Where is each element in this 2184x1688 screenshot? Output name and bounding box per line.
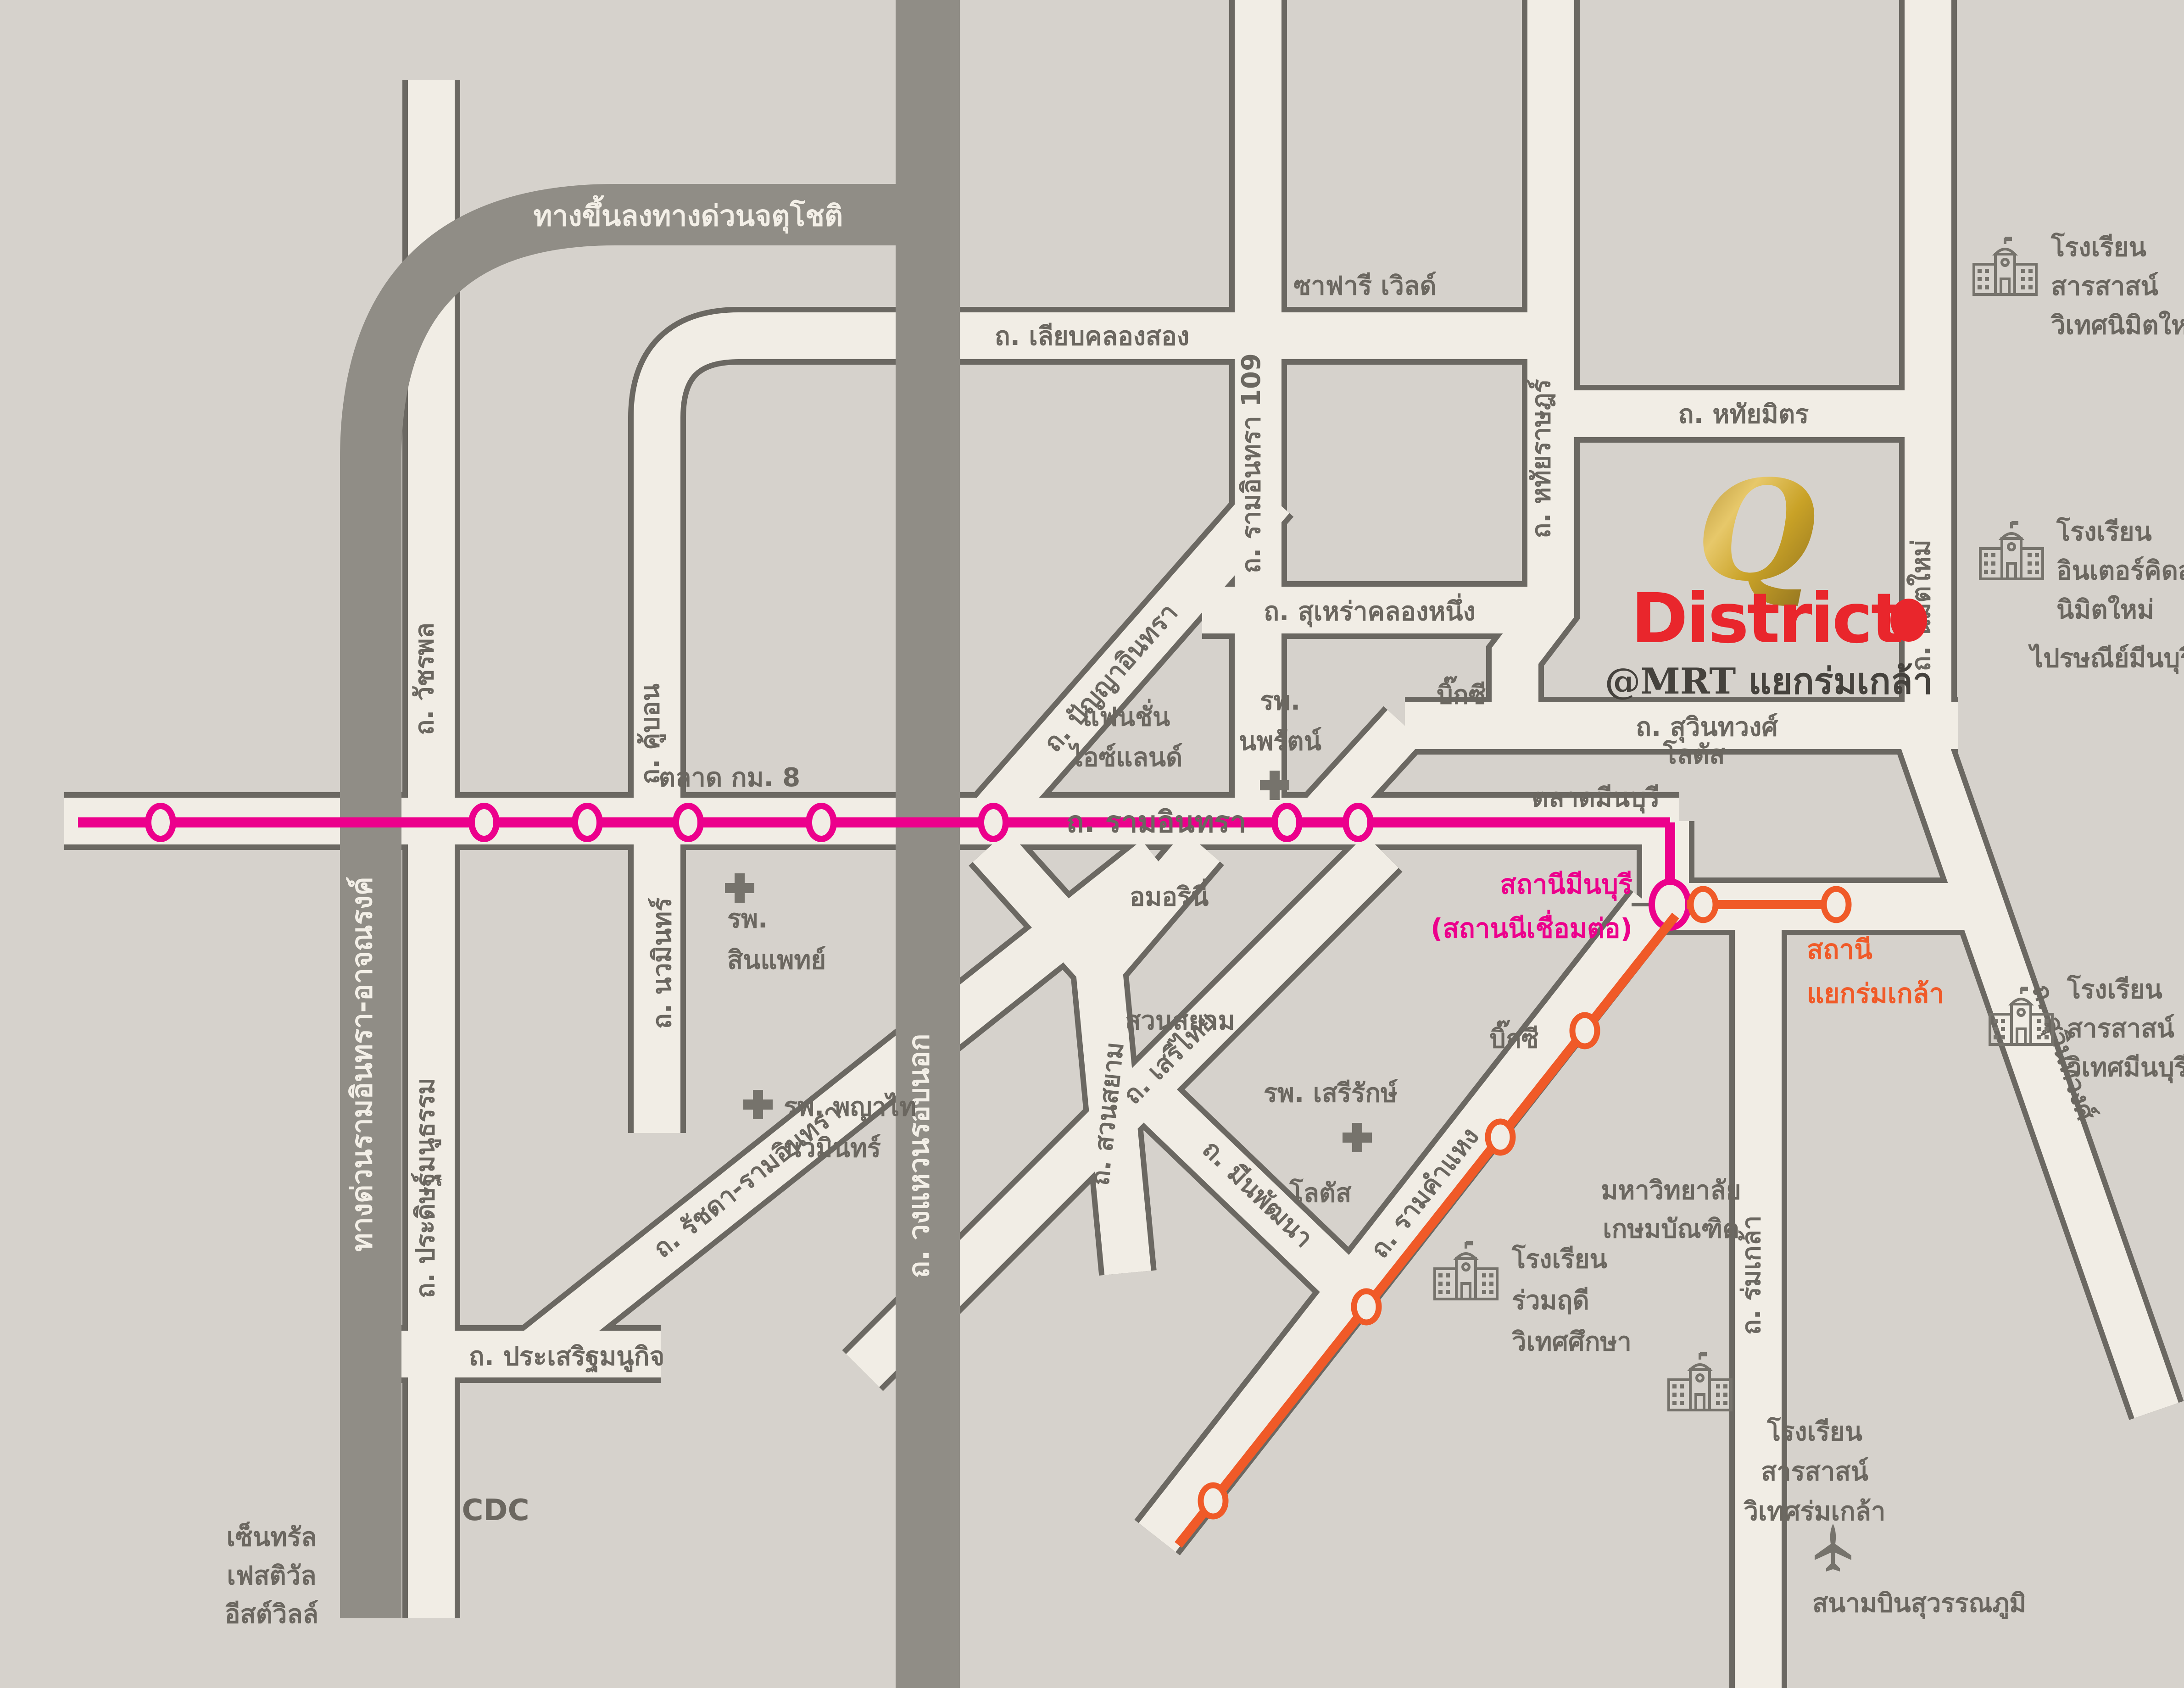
road-label-panya-inthra: ถ. ปัญญาอินทรา xyxy=(1038,598,1184,758)
place-central-eastville: เฟสติวัล xyxy=(227,1561,316,1591)
school-ruamrudee: ร่วมฤดี xyxy=(1512,1286,1589,1316)
place-talad-minburi: ตลาดมีนบุรี xyxy=(1532,783,1660,814)
expwy-jatuchot-label: ทางขึ้นลงทางด่วนจตุโชติ xyxy=(534,195,843,233)
pink-station-icon xyxy=(575,806,600,839)
q-district-brand: Q District @MRT แยกร่มเกล้า xyxy=(1605,450,1933,702)
orange-station-icon xyxy=(1354,1291,1379,1322)
school-sarasas-witaed-minburi: วิเทศมีนบุรี xyxy=(2067,1053,2184,1083)
school-sarasas-witaed-romklao: วิเทศร่มเกล้า xyxy=(1744,1497,1885,1527)
place-phayathai-nawamin-hospital: นวมินทร์ xyxy=(784,1133,881,1163)
place-labels: ซาฟารี เวิลด์ ตลาด กม. 8 แฟนชั่น ไอซ์แลน… xyxy=(225,271,2184,1629)
place-cdc: CDC xyxy=(462,1494,529,1527)
place-sinphaet-hospital: รพ. xyxy=(727,904,768,934)
pink-station-icon xyxy=(676,806,701,839)
pink-station-icon xyxy=(148,806,173,839)
hospital-icon xyxy=(743,1090,773,1119)
school-icon xyxy=(1669,1352,1731,1410)
school-ruamrudee: โรงเรียน xyxy=(1511,1244,1607,1274)
station-label-yaek-rom-klao: สถานี xyxy=(1807,934,1872,965)
school-sarasas-witaed-minburi: สารสาสน์ xyxy=(2067,1014,2174,1044)
road-label-prasert-manukit: ถ. ประเสริฐมนูกิจ xyxy=(469,1342,665,1373)
place-safari-world: ซาฟารี เวิลด์ xyxy=(1293,271,1436,301)
road-label-surao: ถ. สุเหร่าคลองหนึ่ง xyxy=(1264,593,1476,627)
place-minburi-post-office: ไปรษณีย์มีนบุรี xyxy=(2028,643,2184,674)
road-label-ramindra: ถ. รามอินทรา xyxy=(1066,805,1247,839)
place-fashion-island: ไอซ์แลนด์ xyxy=(1068,742,1183,772)
road-label-pradit-manutham: ถ. ประดิษฐ์มนูธรรม xyxy=(411,1077,442,1298)
orange-station-icon xyxy=(1824,889,1849,920)
district-wordmark: District xyxy=(1631,579,1903,659)
place-serirak-hospital: รพ. เสรีรักษ์ xyxy=(1264,1078,1398,1108)
place-talad-km8: ตลาด กม. 8 xyxy=(659,763,801,793)
pink-station-icon xyxy=(981,806,1006,839)
road-label-hathai-mit: ถ. หทัยมิตร xyxy=(1678,400,1809,429)
road-label-nawamin: ถ. นวมินทร์ xyxy=(647,898,677,1029)
road-label-ramindra-109: ถ. รามอินทรา 109 xyxy=(1237,353,1266,573)
school-sarasas-witaed-nimitmai: โรงเรียน xyxy=(2050,232,2146,262)
place-nopparat-hospital: นพรัตน์ xyxy=(1239,727,1322,756)
outer-ring-label: ถ. วงแหวนรอบนอก xyxy=(902,1034,936,1278)
place-kasem-bundit-university: มหาวิทยาลัย xyxy=(1601,1176,1741,1205)
orange-station-icon xyxy=(1572,1015,1597,1046)
station-label-minburi: (สถานนีเชื่อมต่อ) xyxy=(1431,910,1632,944)
place-kasem-bundit-university: เกษมบัณฑิต xyxy=(1603,1214,1739,1244)
pink-station-icon xyxy=(809,806,834,839)
school-icon xyxy=(1974,237,2036,294)
place-bigc-upper: บิ๊กซี xyxy=(1437,676,1486,710)
school-sarasas-witaed-nimitmai: วิเทศนิมิตใหม่ xyxy=(2050,310,2184,340)
q-district-location-map: ทางขึ้นลงทางด่วนจตุโชติ ทางด่วนรามอินทรา… xyxy=(0,0,2184,1688)
school-sarasas-witaed-romklao: โรงเรียน xyxy=(1766,1416,1862,1447)
station-label-yaek-rom-klao: แยกร่มเกล้า xyxy=(1807,978,1944,1009)
orange-station-icon xyxy=(1488,1122,1513,1153)
pink-station-icon xyxy=(1275,806,1299,839)
brand-subtitle: @MRT แยกร่มเกล้า xyxy=(1605,661,1933,702)
place-nopparat-hospital: รพ. xyxy=(1260,686,1300,716)
place-central-eastville: เซ็นทรัล xyxy=(227,1521,317,1552)
school-interkids-nimitmai: นิมิตใหม่ xyxy=(2056,594,2154,625)
q-district-marker-icon xyxy=(1890,599,1927,642)
road-label-hathai-rat: ถ. หทัยราษฎร์ xyxy=(1527,379,1556,538)
airport-icon xyxy=(1815,1524,1851,1571)
place-sinphaet-hospital: สินแพทย์ xyxy=(727,945,826,975)
place-suan-sayam-park: สวนสยาม xyxy=(1125,1006,1235,1036)
school-interkids-nimitmai: อินเตอร์คิดส์ xyxy=(2056,556,2184,586)
place-lotus-lower: โลตัส xyxy=(1289,1178,1352,1208)
map-stage: ทางขึ้นลงทางด่วนจตุโชติ ทางด่วนรามอินทรา… xyxy=(0,0,2184,1688)
school-sarasas-witaed-romklao: สารสาสน์ xyxy=(1761,1457,1868,1487)
place-suvarnabhumi-airport: สนามบินสุวรรณภูมิ xyxy=(1812,1588,2026,1619)
road-label-watcharaphon: ถ. วัชรพล xyxy=(410,622,440,735)
school-sarasas-witaed-minburi: โรงเรียน xyxy=(2067,974,2162,1005)
pink-station-icon xyxy=(472,806,496,839)
orange-station-icon xyxy=(1201,1485,1226,1516)
place-bigc-lower: บิ๊กซี xyxy=(1489,1020,1538,1054)
road-label-liab-khlong-song: ถ. เลียบคลองสอง xyxy=(995,322,1189,351)
school-sarasas-witaed-nimitmai: สารสาสน์ xyxy=(2051,272,2158,301)
hospital-icon xyxy=(725,873,754,903)
place-phayathai-nawamin-hospital: รพ. พญาไท xyxy=(784,1092,916,1122)
place-lotus-upper: โลตัส xyxy=(1663,739,1726,770)
station-label-minburi: สถานีมีนบุรี xyxy=(1500,869,1632,901)
place-fashion-island: แฟนชั่น xyxy=(1083,699,1170,732)
mrt-pink-line xyxy=(78,806,1688,927)
school-icon xyxy=(1435,1241,1497,1299)
road-label-rom-klao: ถ. ร่มเกล้า xyxy=(1737,1216,1766,1335)
place-central-eastville: อีสต์วิลล์ xyxy=(225,1599,318,1629)
hospital-icon xyxy=(1343,1123,1372,1152)
road-label-suwinthawong-h: ถ. สุวินทวงศ์ xyxy=(1636,712,1778,743)
orange-station-icon xyxy=(1691,889,1716,920)
school-ruamrudee: วิเทศศึกษา xyxy=(1511,1327,1631,1357)
place-amorini: อมอรินี่ xyxy=(1130,878,1209,912)
expwy-ramindra-atnarong-label: ทางด่วนรามอินทรา-อาจณรงค์ xyxy=(345,877,379,1252)
school-interkids-nimitmai: โรงเรียน xyxy=(2056,516,2152,547)
school-icon xyxy=(1980,521,2043,579)
pink-station-icon xyxy=(1346,806,1371,839)
